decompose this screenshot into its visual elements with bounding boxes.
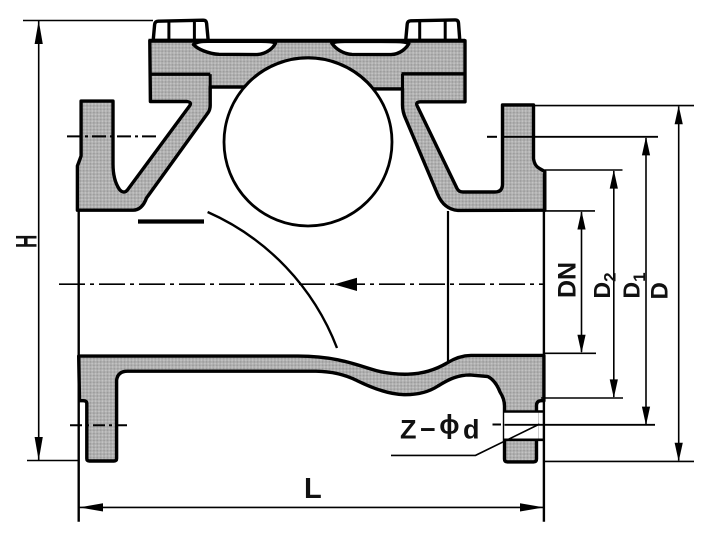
svg-text:H: H xyxy=(10,235,44,248)
svg-text:L: L xyxy=(304,473,322,505)
svg-text:DN: DN xyxy=(554,262,582,298)
svg-text:D: D xyxy=(647,282,674,299)
svg-text:Z−ϕd: Z−ϕd xyxy=(400,410,483,445)
